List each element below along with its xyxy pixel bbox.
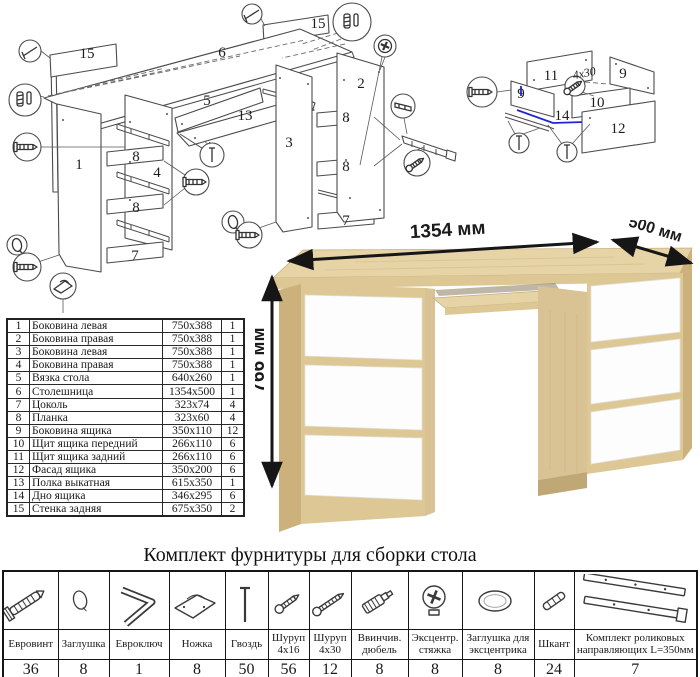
hardware-qty-row: 36 8 1 8 50 56 12 8 8 8 24 7 [3,660,697,677]
screw-in-dowel-icon [352,575,406,627]
hardware-name-row: Евровинт Заглушка Евроключ Ножка Гвоздь … [3,630,697,660]
svg-text:12: 12 [611,121,626,137]
right-drawer-1 [591,278,680,342]
svg-text:11: 11 [544,68,558,84]
table-row: 1Боковина левая750x3881 [7,319,244,333]
euro-key-icon [110,575,162,627]
hardware-kit-title: Комплект фурнитуры для сборки стола [0,544,620,567]
foot-icon [170,575,220,627]
table-row: 7Цоколь323x744 [7,398,244,411]
parts-list-table: 1Боковина левая750x3881 2Боковина правая… [6,318,245,517]
table-row: 15Стенка задняя675x3502 [7,503,244,517]
height-dimension-label: 766 мм [255,327,269,392]
cam-cover-cap-icon [463,575,527,627]
svg-text:8: 8 [132,149,140,165]
svg-text:6: 6 [218,45,226,61]
screw-4x16-icon [269,575,307,627]
wood-dowel-icon [535,575,573,627]
nail-icon [226,575,264,627]
svg-text:15: 15 [80,46,95,62]
screw-4x30-icon [310,575,350,627]
svg-text:9: 9 [619,66,627,82]
table-row: 10Щит ящика передний266x1106 [7,437,244,450]
assembly-instruction-sheet: 15 6 15 1 8 4 8 7 5 13 3 2 8 8 7 [0,0,700,677]
svg-text:13: 13 [238,108,253,124]
left-drawer-1 [305,295,422,360]
table-row: 5Вязка стола640x2601 [7,372,244,385]
svg-text:10: 10 [590,95,605,111]
svg-text:9: 9 [517,86,525,102]
side-panel-3 [276,65,312,232]
depth-dimension-label: 500 мм [627,220,684,246]
left-pedestal-side [279,284,301,532]
svg-text:2: 2 [357,76,365,92]
table-row: 8Планка323x604 [7,411,244,424]
inner-right-wall [538,286,587,480]
table-row: 12Фасад ящика350x2006 [7,464,244,477]
table-row: 2Боковина правая750x3881 [7,333,244,346]
side-panel-1 [57,104,101,272]
euro-screw-icon [4,575,52,627]
svg-text:7: 7 [131,248,139,264]
desk-tabletop [273,248,692,278]
table-row: 13Полка выкатная615x3501 [7,477,244,490]
svg-text:5: 5 [203,93,211,109]
hardware-kit-table: Евровинт Заглушка Евроключ Ножка Гвоздь … [2,570,698,677]
table-row: 6Столешница1354x5001 [7,385,244,398]
svg-text:8: 8 [342,159,350,175]
drawer-exploded-diagram: 11 9 9 10 14 12 4х30 [467,51,655,162]
table-row: 9Боковина ящика350x11012 [7,424,244,437]
eccentric-cam-icon [409,575,459,627]
cap-icon [59,575,103,627]
hardware-icon-row [3,571,697,630]
table-row: 11Щит ящика задний266x1106 [7,450,244,463]
table-row: 3Боковина левая750x3881 [7,346,244,359]
svg-text:8: 8 [342,110,350,126]
roller-guides-icon [575,574,693,628]
table-row: 14Дно ящика346x2956 [7,490,244,503]
svg-text:15: 15 [311,16,326,32]
svg-text:8: 8 [132,200,140,216]
svg-text:4: 4 [153,165,161,181]
svg-text:14: 14 [555,108,571,124]
left-drawer-3 [305,435,422,500]
svg-text:1: 1 [75,157,83,173]
side-panel-4 [125,95,172,250]
left-drawer-2 [305,365,422,430]
svg-text:3: 3 [285,135,293,151]
width-dimension-label: 1354 мм [409,220,486,243]
right-pedestal-side [683,258,692,460]
table-row: 4Боковина правая750x3881 [7,359,244,372]
desk-product-render: 1354 мм 500 мм 766 мм [255,220,700,545]
inner-left-wall [425,288,435,516]
